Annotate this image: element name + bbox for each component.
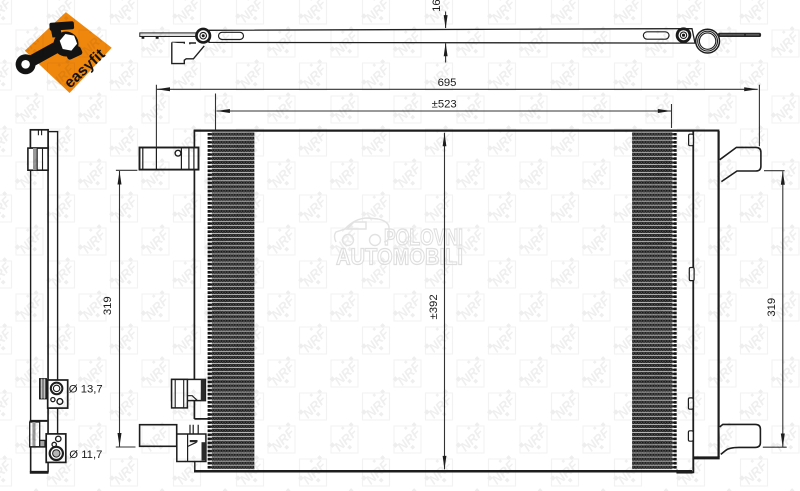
- svg-text:AUTOMOBILI: AUTOMOBILI: [336, 244, 463, 270]
